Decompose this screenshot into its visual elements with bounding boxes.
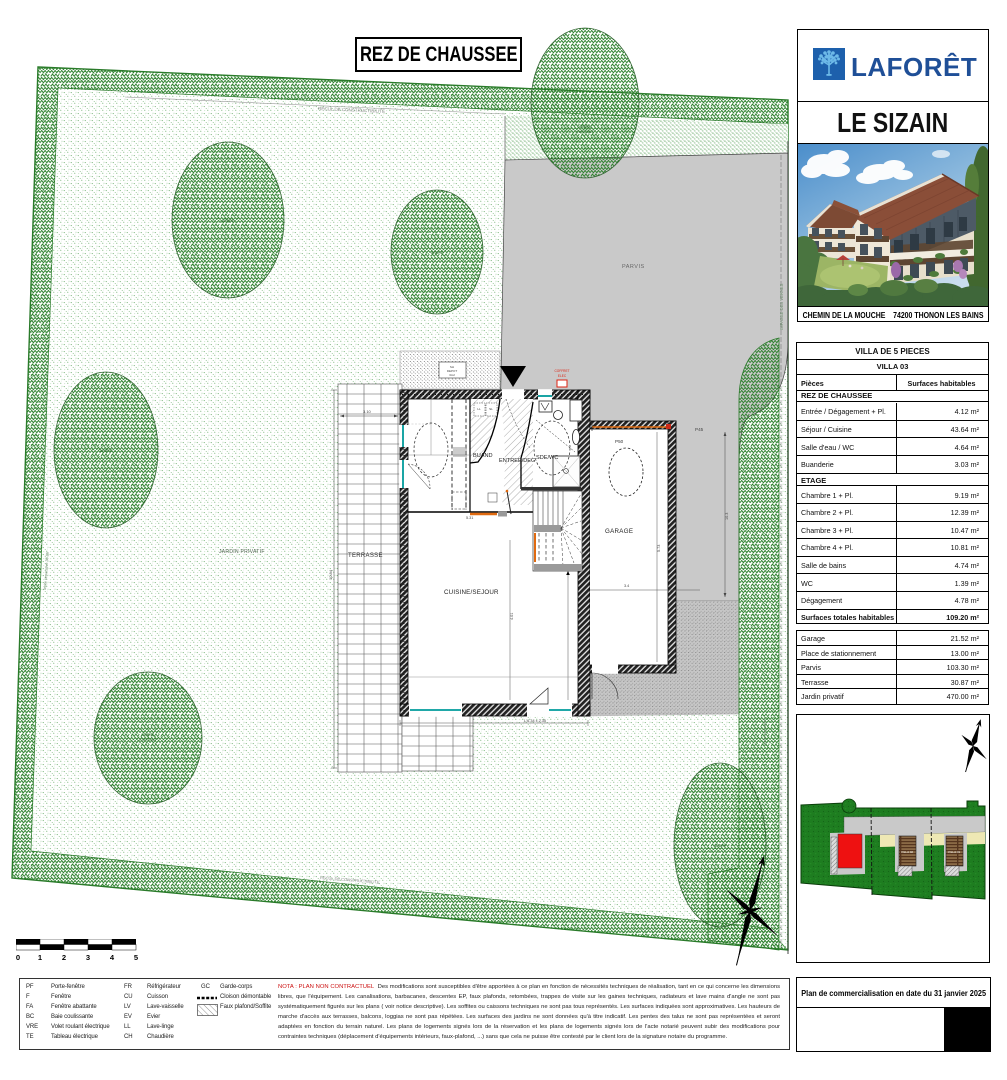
- svg-text:ARBRE: ARBRE: [100, 449, 113, 453]
- svg-text:4: 4: [110, 953, 115, 962]
- svg-text:3.10: 3.10: [363, 409, 372, 414]
- svg-text:TERRASSE: TERRASSE: [348, 553, 383, 559]
- svg-text:ARBRE: ARBRE: [431, 251, 444, 255]
- svg-text:ARBRE: ARBRE: [142, 733, 155, 737]
- svg-text:COFFRET: COFFRET: [554, 369, 569, 373]
- svg-text:L:6.34 x 2.35: L:6.34 x 2.35: [524, 719, 546, 723]
- svg-text:P50: P50: [615, 439, 624, 444]
- svg-text:ARBRE: ARBRE: [579, 125, 592, 129]
- svg-text:P45: P45: [695, 427, 704, 432]
- svg-text:VILLA 01: VILLA 01: [948, 850, 961, 854]
- svg-text:10.84: 10.84: [328, 569, 333, 580]
- svg-text:ELEC: ELEC: [558, 374, 567, 378]
- svg-text:3: 3: [86, 953, 90, 962]
- svg-text:LL: LL: [477, 407, 481, 411]
- svg-text:2: 2: [62, 953, 66, 962]
- svg-text:ENTREE/DEG: ENTREE/DEG: [499, 458, 535, 464]
- svg-text:EXISTANT: EXISTANT: [576, 130, 594, 134]
- svg-text:CUISINE/SEJOUR: CUISINE/SEJOUR: [444, 589, 499, 596]
- svg-text:limite separative: limite separative: [763, 718, 767, 745]
- svg-text:PARVIS: PARVIS: [622, 264, 645, 270]
- svg-text:3.4: 3.4: [624, 584, 629, 588]
- svg-text:10.3: 10.3: [725, 513, 729, 520]
- svg-text:4.01: 4.01: [510, 613, 514, 620]
- svg-text:SDE/WC: SDE/WC: [536, 455, 558, 461]
- svg-text:1: 1: [38, 953, 43, 962]
- svg-text:5: 5: [134, 953, 139, 962]
- svg-text:ARBRE: ARBRE: [714, 844, 727, 848]
- svg-text:0: 0: [16, 953, 20, 962]
- svg-text:ARBRE: ARBRE: [222, 219, 235, 223]
- svg-text:5.31: 5.31: [466, 516, 473, 520]
- svg-text:SL: SL: [489, 407, 493, 411]
- svg-text:EXISTANT: EXISTANT: [139, 738, 157, 742]
- svg-text:IMPASSE DES VERNES: IMPASSE DES VERNES: [779, 283, 784, 330]
- svg-text:VILLA 02: VILLA 02: [901, 850, 914, 854]
- svg-text:BUAND: BUAND: [473, 453, 493, 459]
- svg-text:5.73: 5.73: [657, 545, 661, 552]
- svg-text:GARAGE: GARAGE: [605, 528, 633, 535]
- svg-text:3m2: 3m2: [449, 373, 455, 377]
- svg-text:JARDIN PRIVATIF: JARDIN PRIVATIF: [219, 549, 265, 555]
